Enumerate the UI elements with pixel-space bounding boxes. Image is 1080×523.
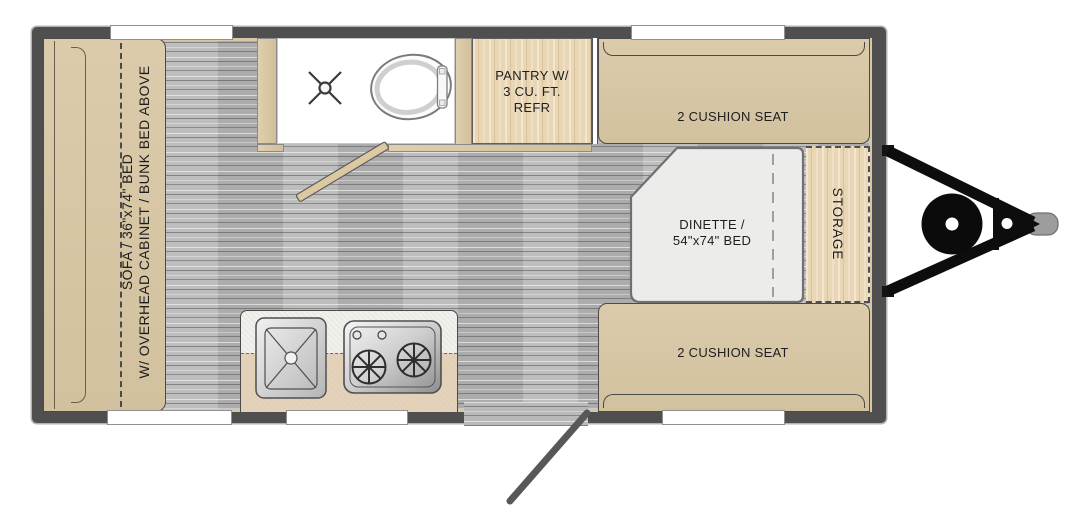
dinette-label: DINETTE / 54"x74" BED [673,217,751,249]
entry-doorway-opening [464,402,588,426]
bathroom-pantry-wall-band [388,144,592,152]
entry-door-icon [510,413,587,501]
dinette-seat-front [598,38,870,144]
hitch-icon [882,145,1058,297]
tongue-jack-wheel-icon [922,194,983,255]
bathroom-wall-stub [257,144,284,152]
seat-back-line [603,42,865,56]
window [110,25,233,40]
kitchen-counter [240,310,458,412]
seat-back-line [603,394,865,408]
sofa-label: SOFA / 36"x74" BED W/ OVERHEAD CABINET /… [119,66,153,379]
window [631,25,785,40]
storage-label: STORAGE [829,188,845,261]
kitchen-cabinet-base [241,353,457,412]
sofa-seam [54,41,55,409]
window [107,410,232,425]
floorplan: SOFA / 36"x74" BED W/ OVERHEAD CABINET /… [0,0,1080,523]
seat-front-label: 2 CUSHION SEAT [677,109,789,125]
seat-rear-label: 2 CUSHION SEAT [677,345,789,361]
bathroom-floor [277,38,455,144]
window [286,410,408,425]
window [662,410,785,425]
sofa-cushion-edge [71,47,86,403]
hitch-coupler [1026,213,1058,235]
bathroom-right-wall [455,38,472,151]
bathroom-left-wall [257,38,277,144]
pantry-label: PANTRY W/ 3 CU. FT. REFR [495,68,569,116]
